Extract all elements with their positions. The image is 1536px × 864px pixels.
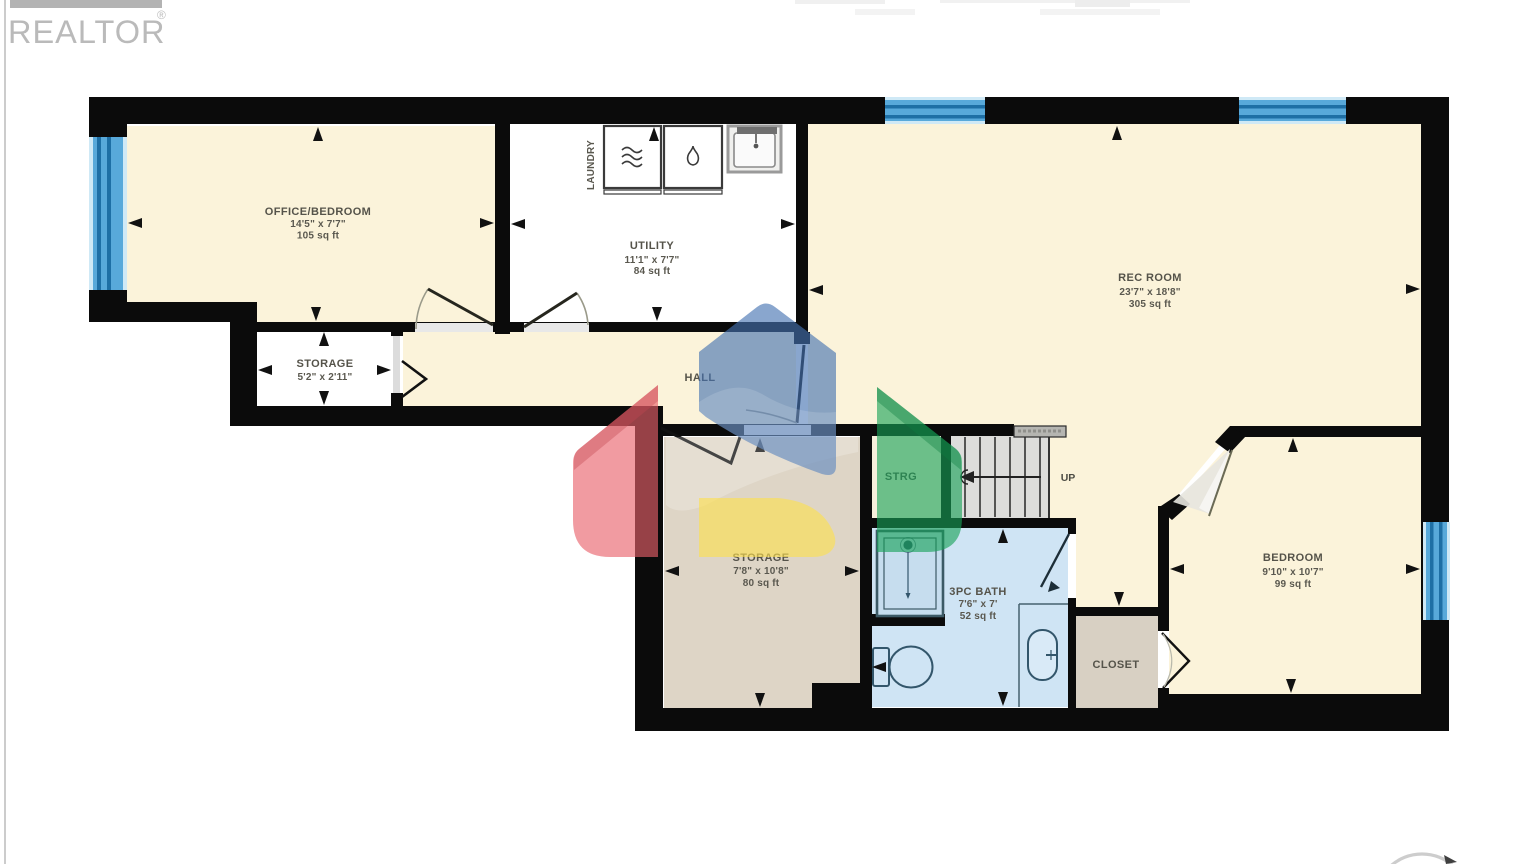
svg-text:5'2" x 2'11": 5'2" x 2'11" <box>297 372 352 383</box>
svg-text:99 sq ft: 99 sq ft <box>1275 579 1312 590</box>
svg-text:105 sq ft: 105 sq ft <box>297 231 340 242</box>
svg-text:OFFICE/BEDROOM: OFFICE/BEDROOM <box>265 206 371 218</box>
svg-text:11'1" x 7'7": 11'1" x 7'7" <box>624 255 679 266</box>
svg-text:14'5" x 7'7": 14'5" x 7'7" <box>290 219 346 230</box>
svg-text:STORAGE: STORAGE <box>297 358 354 370</box>
svg-text:7'8" x 10'8": 7'8" x 10'8" <box>733 566 789 577</box>
svg-text:52 sq ft: 52 sq ft <box>960 611 997 622</box>
svg-text:23'7" x 18'8": 23'7" x 18'8" <box>1119 287 1180 298</box>
svg-text:CLOSET: CLOSET <box>1092 659 1139 671</box>
svg-text:80 sq ft: 80 sq ft <box>743 578 780 589</box>
svg-text:305 sq ft: 305 sq ft <box>1129 299 1172 310</box>
svg-text:3PC BATH: 3PC BATH <box>949 586 1006 598</box>
svg-text:LAUNDRY: LAUNDRY <box>586 140 597 190</box>
svg-text:84 sq ft: 84 sq ft <box>634 266 671 277</box>
svg-text:7'6" x 7': 7'6" x 7' <box>958 599 997 610</box>
svg-text:BEDROOM: BEDROOM <box>1263 552 1323 564</box>
svg-text:REC ROOM: REC ROOM <box>1118 272 1182 284</box>
svg-text:REALTOR: REALTOR <box>8 14 166 50</box>
svg-text:UP: UP <box>1061 472 1076 484</box>
svg-text:UTILITY: UTILITY <box>630 240 675 252</box>
svg-text:®: ® <box>157 8 166 22</box>
svg-text:9'10" x 10'7": 9'10" x 10'7" <box>1262 567 1323 578</box>
